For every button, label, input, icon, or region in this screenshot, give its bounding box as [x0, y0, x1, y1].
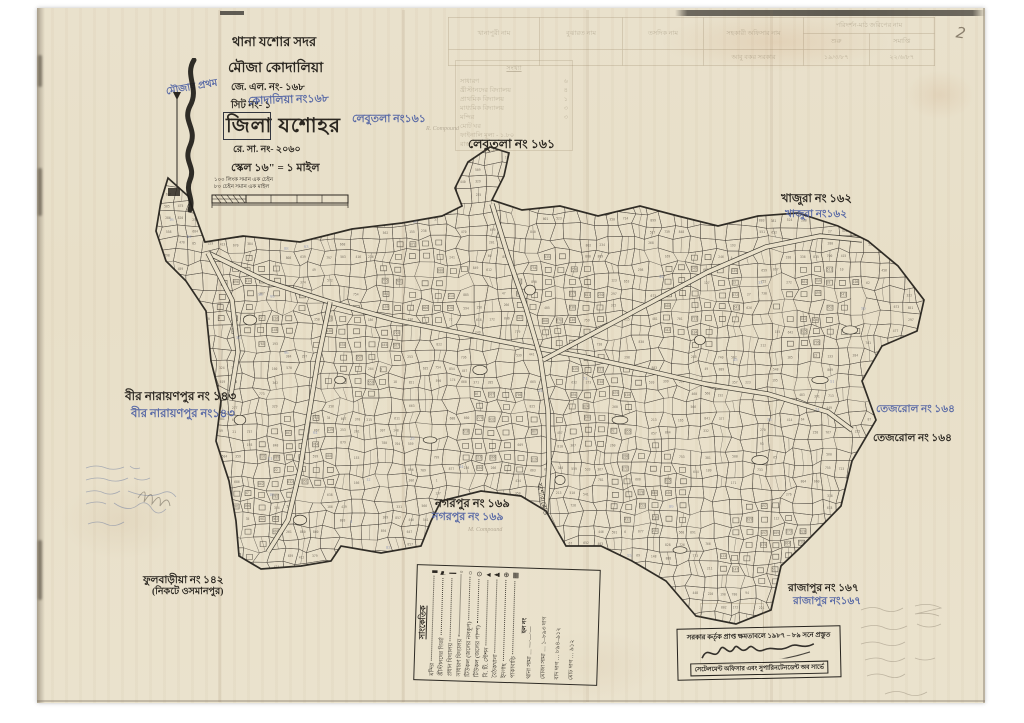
legend-symbol-eidgah: ⊕ — [503, 572, 510, 578]
legend-symbol-brick-house: ▦ — [512, 572, 519, 579]
title-scale: স্কেল ১৬" = ১ মাইল — [231, 159, 320, 178]
stats-value: ৩ — [564, 112, 568, 121]
stats-label: সাধারণ — [460, 76, 479, 85]
preparation-stamp-box: সরকার কর্তৃক প্রাপ্ত ক্ষমতাবলে ১৯৮৭ – ৮৯… — [676, 625, 841, 680]
dot-leader — [468, 577, 470, 620]
stats-label: মন্দির — [460, 112, 474, 121]
stamp-line-prepared: সরকার কর্তৃক প্রাপ্ত ক্ষমতাবলে ১৯৮৭ – ৮৯… — [687, 629, 831, 644]
legend-footer-line: মোট দাগ … ৯১২ — [568, 574, 585, 680]
table-span-header: পরিদর্শন-মাঠ জরিপের নাম — [804, 18, 935, 34]
legend-symbol-temple: ▮ — [432, 570, 439, 574]
label-phulbaria-sub: (নিকটে ওসমানপুর) — [152, 585, 223, 600]
stats-value: ১ — [564, 94, 568, 103]
table-cell-date-start: ১৯/৩/৮৭ — [804, 50, 870, 66]
label-lebutola-blue: লেবুতলা নং১৬১ — [352, 110, 426, 129]
table-header-cell: বুঝারত নাম — [540, 18, 623, 50]
title-district: জিলা যশোহর — [226, 111, 341, 144]
stats-title: সংখ্যা — [460, 63, 568, 74]
label-tejrol: তেজরোল নং ১৬৪ — [873, 431, 952, 448]
stats-label: প্রাথমিক বিদ্যালয় — [460, 94, 504, 103]
scale-note-2: ৮০ চেইন সমান এক মাইল — [214, 184, 269, 192]
table-header-cell: খানাপুরী নাম — [449, 18, 540, 50]
legend-symbol-school: ❙ — [450, 570, 457, 576]
label-bir-narayanpur-blue: বীর নারায়ণপুর নং১৪৩ — [131, 405, 235, 424]
paper-right-edge — [983, 8, 985, 703]
legend-symbol-school2: ▫ — [459, 570, 466, 573]
title-sheet-blue-annotation: কোদালিয়া নং১৬৮ — [248, 90, 329, 112]
paper-top-dark-edge — [675, 10, 985, 16]
dot-leader — [431, 576, 435, 661]
dot-leader — [494, 580, 497, 652]
dot-leader — [512, 581, 515, 654]
fold-line — [770, 10, 773, 702]
table-cell — [623, 50, 704, 66]
table-cell-date-end: ২২/৬/৮৭ — [869, 50, 935, 66]
legend-symbol-tubewell: ○ — [468, 571, 475, 575]
paper-edge-dark-segment — [38, 55, 42, 87]
dot-leader — [441, 578, 444, 635]
top-ink-dash — [220, 11, 244, 15]
table-header-cell: তসদিক নাম — [623, 18, 704, 50]
title-thana: থানা যশোর সদর — [232, 33, 316, 54]
paper-bottom-edge — [37, 700, 985, 702]
legend-rotated-content: সাংকেতিক মন্দির▮ খ্রীস্টানদের গির্জা⚑ প্… — [414, 567, 595, 683]
stamp-line-officer: সেটেলমেন্ট অফিসার এবং সুপারিনটেনডেন্ট অব… — [690, 661, 828, 677]
dot-leader — [459, 575, 462, 637]
stats-label: মাধ্যমিক বিদ্যালয় — [460, 103, 504, 112]
dot-leader — [485, 580, 488, 645]
paper-edge-dark-segment — [38, 540, 42, 600]
legend-symbol-church: ⚑ — [441, 570, 448, 576]
stats-label: রাস্তা — [460, 139, 472, 148]
label-nagarpur-blue: নগরপুর নং ১৬৯ — [432, 508, 504, 527]
pencil-note-compound-2: M. Compound — [468, 527, 502, 533]
dot-leader — [503, 580, 507, 662]
title-reg-no: রে. সা. নং- ২০৬০ — [233, 143, 301, 158]
stats-label: ফাইনালি মূল্য - ১.৮০ — [460, 130, 514, 139]
legend-box: সাংকেতিক মন্দির▮ খ্রীস্টানদের গির্জা⚑ প্… — [413, 564, 601, 686]
paper-edge-dark-segment — [38, 168, 42, 216]
stats-value: ৬ — [564, 76, 568, 85]
faint-statistics-panel: সংখ্যা সাধারণ৬ খ্রীস্টানদের বিদ্যালয়৪ প… — [455, 60, 573, 151]
title-mouza: মৌজা কোদালিয়া — [228, 56, 323, 80]
table-cell-officer: আবু বকর সরকার — [704, 50, 804, 66]
label-khajura-blue: খাজুরা নং১৬২ — [785, 207, 847, 224]
table-subheader-end: সমাপ্তি — [869, 34, 935, 50]
label-tejrol-blue: তেজরোল নং ১৬৪ — [876, 402, 955, 419]
stats-label: মোট ঘর — [460, 121, 481, 130]
stats-value: ৩ — [564, 103, 568, 112]
dot-leader — [477, 579, 479, 623]
legend-symbol-pump: ⊙ — [476, 571, 483, 577]
legend-symbol-station: ▲ — [485, 571, 492, 578]
table-subheader-start: শুরু — [804, 34, 870, 50]
dot-leader — [449, 578, 452, 641]
survey-progress-table: খানাপুরী নাম বুঝারত নাম তসদিক নাম সহকারী… — [448, 17, 935, 66]
label-rajapur-blue: রাজাপুর নং১৬৭ — [793, 594, 861, 611]
stats-value: ৪ — [564, 85, 568, 94]
table-header-cell: সহকারী অফিসার নাম — [704, 18, 804, 50]
legend-symbol-meeting-house: ♟ — [494, 572, 501, 578]
scanned-cadastral-map-page: 2 27225517874711310777231453842481605127… — [0, 0, 1024, 723]
stats-label: খ্রীস্টানদের বিদ্যালয় — [460, 85, 511, 94]
